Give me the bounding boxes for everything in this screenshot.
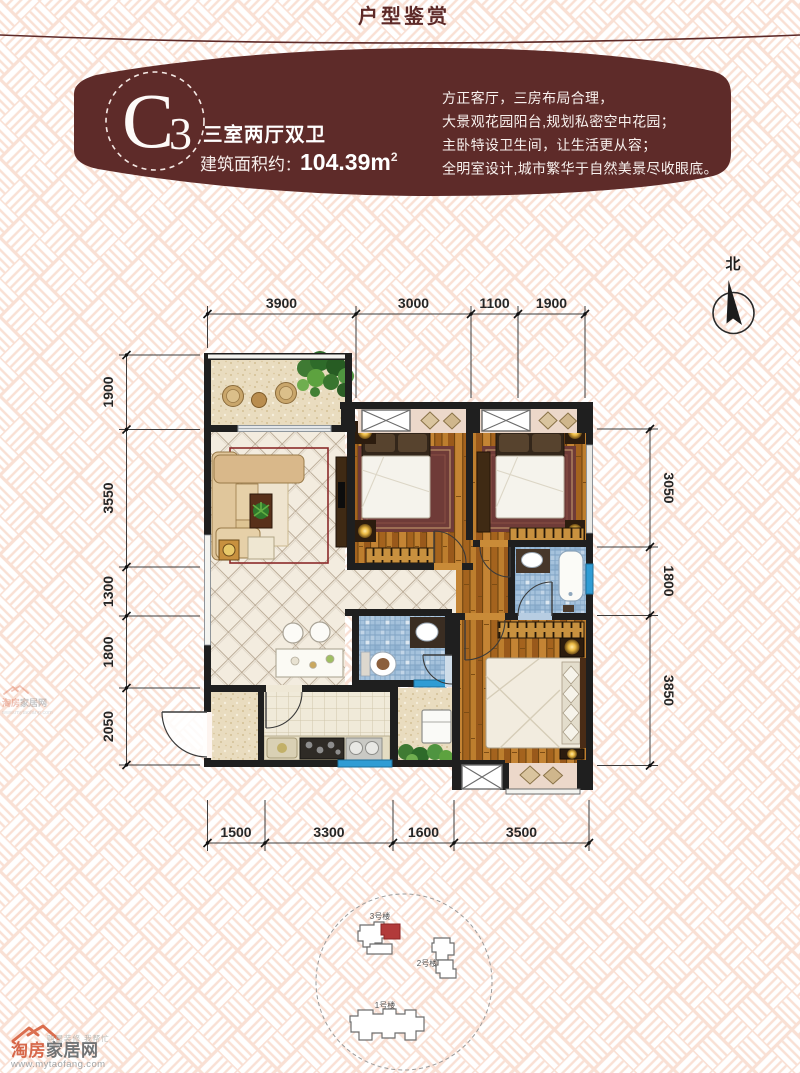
svg-text:3号楼: 3号楼 [370, 911, 390, 921]
svg-text:主卧特设卫生间，让生活更从容；: 主卧特设卫生间，让生活更从容； [442, 137, 657, 154]
svg-text:3300: 3300 [313, 824, 344, 840]
svg-text:www.mytaofang.com: www.mytaofang.com [1, 710, 53, 716]
svg-text:www.mytaofang.com: www.mytaofang.com [10, 1059, 105, 1070]
svg-text:1号楼: 1号楼 [375, 1000, 395, 1010]
svg-text:3050: 3050 [661, 472, 677, 503]
svg-text:1300: 1300 [100, 576, 116, 607]
svg-text:淘房家居网: 淘房家居网 [2, 697, 47, 708]
svg-text:2050: 2050 [100, 711, 116, 742]
svg-text:3500: 3500 [506, 824, 537, 840]
svg-text:1600: 1600 [408, 824, 439, 840]
svg-text:方正客厅，三房布局合理，: 方正客厅，三房布局合理， [442, 90, 614, 106]
svg-text:C: C [122, 77, 174, 164]
svg-text:1900: 1900 [536, 295, 567, 311]
svg-text:北: 北 [725, 256, 740, 273]
svg-text:3850: 3850 [661, 675, 677, 706]
svg-text:户型鉴赏: 户型鉴赏 [358, 4, 450, 28]
svg-text:淘房家居网: 淘房家居网 [11, 1040, 99, 1060]
svg-text:1100: 1100 [479, 295, 510, 311]
svg-text:1500: 1500 [220, 824, 251, 840]
svg-text:大景观花园阳台,规划私密空中花园；: 大景观花园阳台,规划私密空中花园； [442, 114, 675, 131]
svg-text:3000: 3000 [398, 295, 429, 311]
svg-text:3: 3 [169, 108, 192, 159]
svg-text:3550: 3550 [100, 482, 116, 513]
svg-text:1900: 1900 [100, 376, 116, 407]
svg-text:1800: 1800 [100, 636, 116, 667]
svg-text:全明室设计,城市繁华于自然美景尽收眼底。: 全明室设计,城市繁华于自然美景尽收眼底。 [442, 161, 718, 177]
svg-text:1800: 1800 [661, 565, 677, 596]
svg-text:三室两厅双卫: 三室两厅双卫 [203, 123, 326, 146]
svg-text:3900: 3900 [266, 295, 297, 311]
svg-text:2号楼: 2号楼 [417, 958, 437, 968]
